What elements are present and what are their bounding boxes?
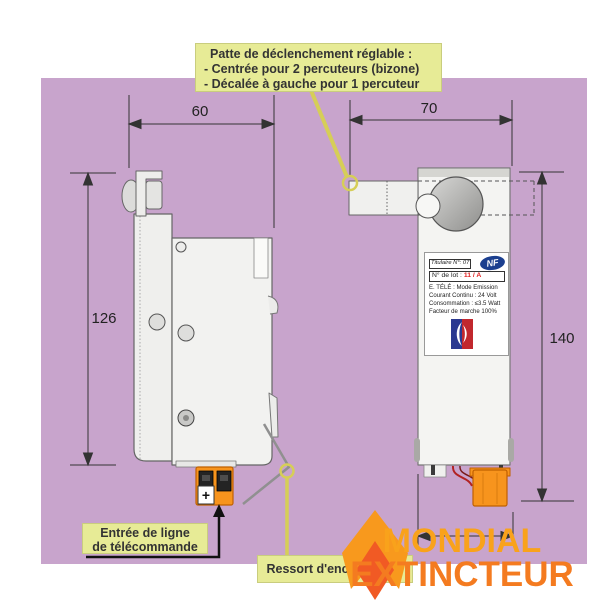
brand-wordmark: MONDIAL EXTINCTEUR (326, 525, 598, 592)
dimension-label-70: 70 (411, 100, 447, 117)
label-line-4: Facteur de marche 100% (429, 308, 502, 316)
entree-annotation: Entrée de ligne de télécommande (82, 523, 208, 554)
rail-clip (254, 238, 268, 278)
side-lug-right (508, 438, 514, 462)
entree-line1: Entrée de ligne (83, 526, 207, 540)
knurled-nut (146, 181, 162, 209)
titulaire-text: Titulaire N°: 07 (429, 259, 471, 269)
label-line-1: E. TÉLÉ : Mode Emission (429, 284, 502, 292)
dimension-label-60: 60 (182, 103, 218, 120)
patte-annotation: Patte de déclenchement réglable : - Cent… (195, 43, 442, 92)
small-hole-front (416, 194, 440, 218)
brand-mark-icon (451, 319, 505, 352)
product-label: Titulaire N°: 07 NF N° de lot : 11 / A E… (424, 252, 509, 356)
hole-small (176, 242, 186, 252)
nf-logo: NF (479, 254, 506, 271)
left-view-drawing: + (122, 171, 289, 505)
patte-line1: - Centrée pour 2 percuteurs (bizone) (204, 62, 435, 77)
patte-title: Patte de déclenchement réglable : (204, 47, 435, 62)
terminal-block-side: + (196, 467, 233, 505)
hole-center (183, 415, 189, 421)
entree-line2: de télécommande (83, 540, 207, 554)
label-line-3: Consommation : ≤3.5 Watt (429, 300, 502, 308)
side-lug-left (414, 438, 420, 462)
dimension-label-126: 126 (86, 310, 122, 327)
pin (431, 465, 435, 475)
lot-number: N° de lot : 11 / A (429, 271, 505, 282)
hole (178, 325, 194, 341)
dimension-label-140: 140 (544, 330, 580, 347)
ressort-callout-line (281, 465, 294, 557)
plus-terminal-mark: + (202, 487, 210, 503)
body-top-strip (419, 169, 509, 177)
hole (149, 314, 165, 330)
brand-line2: EXTINCTEUR (326, 558, 598, 592)
terminal-block-front (470, 468, 510, 506)
release-tab (349, 181, 418, 215)
label-line-2: Courant Continu : 24 Volt (429, 292, 502, 300)
patte-line2: - Décalée à gauche pour 1 percuteur (204, 77, 435, 92)
lot-value: 11 / A (464, 272, 482, 279)
brand-line1: MONDIAL (326, 525, 598, 558)
bottom-step (176, 461, 236, 467)
